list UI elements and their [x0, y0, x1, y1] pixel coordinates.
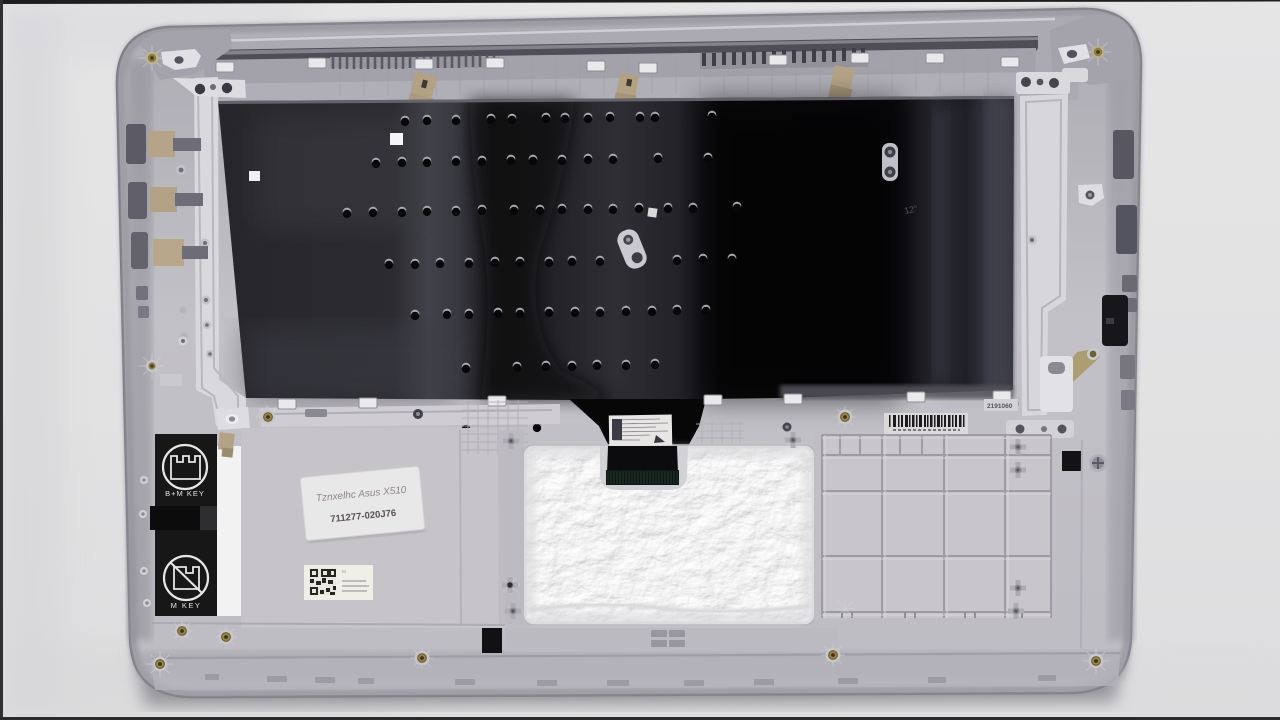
svg-text:M: M — [342, 569, 346, 574]
svg-text:2191060: 2191060 — [987, 403, 1013, 410]
svg-text:M KEY: M KEY — [171, 601, 202, 610]
svg-text:B+M KEY: B+M KEY — [165, 489, 205, 498]
